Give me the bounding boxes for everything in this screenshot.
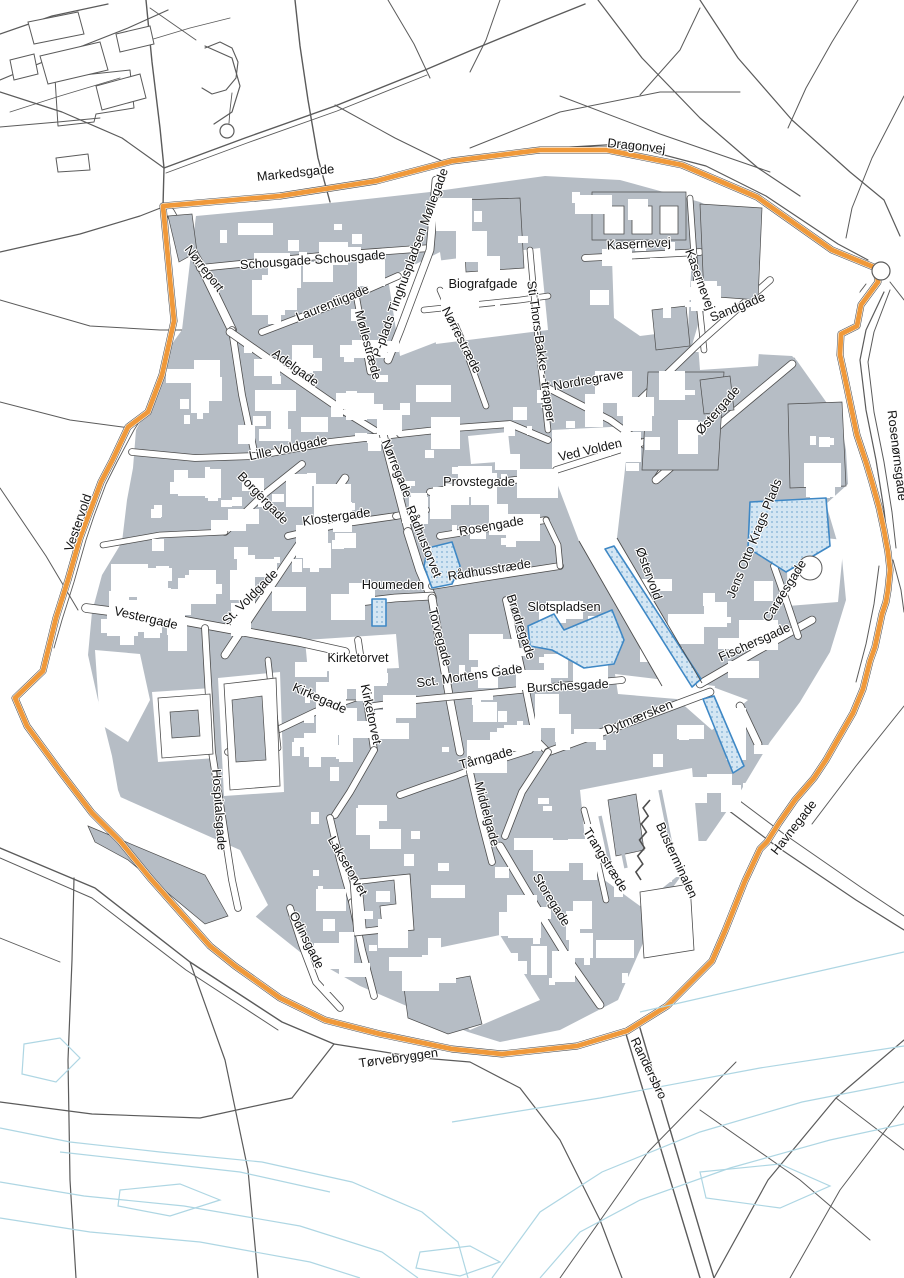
svg-text:Houmeden: Houmeden	[362, 577, 425, 592]
svg-text:Slotspladsen: Slotspladsen	[527, 599, 600, 614]
svg-text:Biografgade: Biografgade	[448, 276, 517, 291]
svg-text:Kirketorvet: Kirketorvet	[327, 650, 389, 665]
svg-text:Provstegade: Provstegade	[443, 474, 515, 489]
